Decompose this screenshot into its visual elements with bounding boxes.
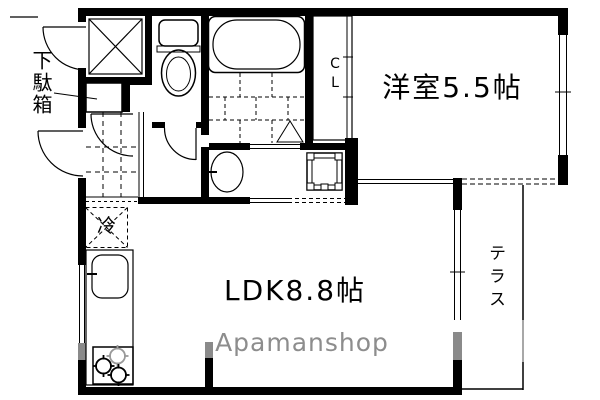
- hall-partition-door: [91, 114, 133, 156]
- washbasin-icon: [207, 152, 243, 192]
- floorplan: 下駄箱 CL 洋室5.5帖 LDK8.8帖 冷 テラス Apamanshop: [0, 0, 600, 400]
- toilet-icon: [157, 20, 200, 96]
- ldk-label: LDK8.8帖: [165, 269, 425, 309]
- toilet-door: [165, 128, 197, 160]
- three-burner-stove-icon: [93, 345, 134, 386]
- x-cross-storage: [89, 19, 142, 74]
- refrigerator-label: 冷: [97, 211, 116, 238]
- terrace-label: テラス: [483, 244, 508, 313]
- shower-triangle-icon: [277, 121, 303, 142]
- genkan-tile-grid: [86, 112, 144, 202]
- shoe-box-icon: [54, 83, 122, 112]
- watermark: Apamanshop: [192, 328, 412, 357]
- washing-machine-pan-icon: [307, 153, 342, 190]
- sink-icon: [87, 255, 128, 298]
- western-room-label: 洋室5.5帖: [340, 66, 565, 106]
- bath-tile-grid: [209, 73, 305, 143]
- bathtub-icon: [209, 17, 305, 73]
- shoe-cabinet-label: 下駄箱: [27, 50, 56, 116]
